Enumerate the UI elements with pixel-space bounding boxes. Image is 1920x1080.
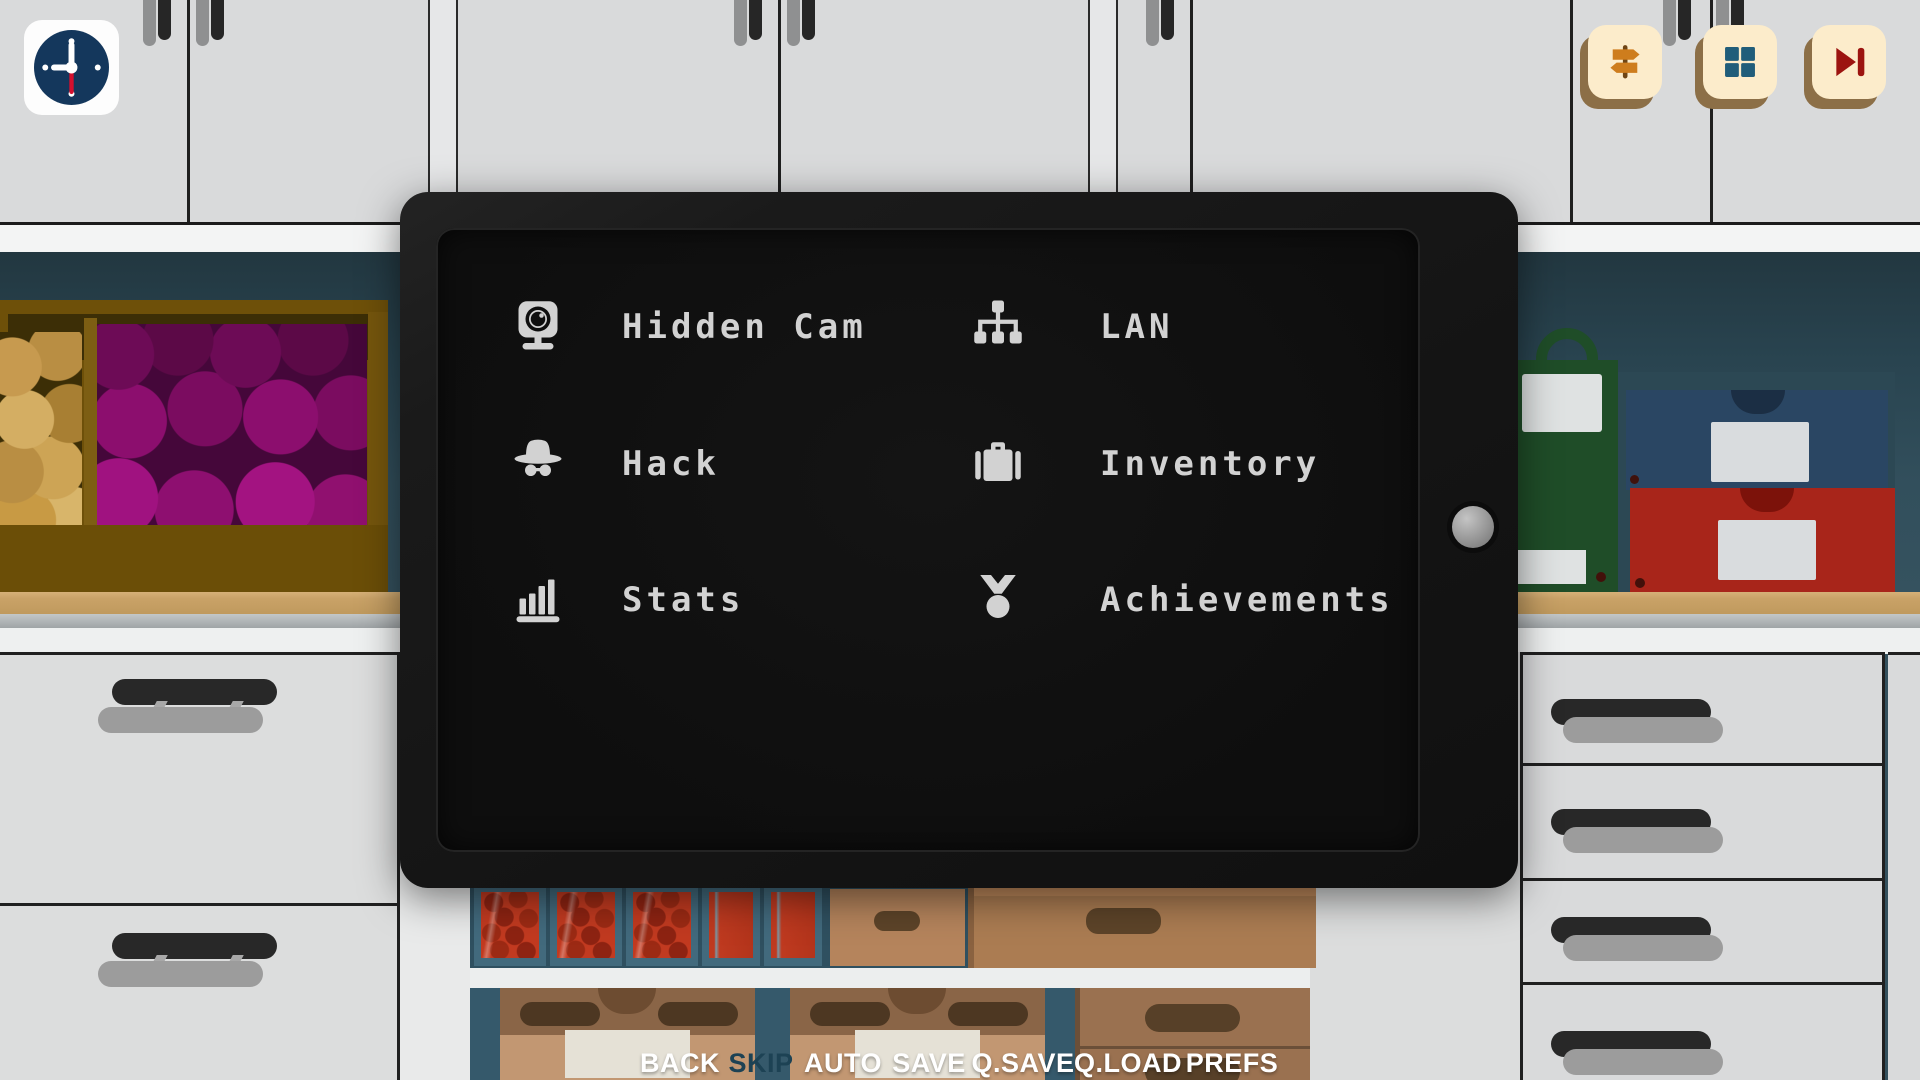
drawer-handle-shadow <box>98 707 263 733</box>
box-handle-hole <box>520 1002 600 1026</box>
tablet-device: Hidden Cam Hack <box>400 192 1518 888</box>
cabinet-door-divider <box>1190 0 1193 222</box>
apps-grid-button[interactable] <box>1703 25 1777 99</box>
quickmenu-auto[interactable]: AUTO <box>804 1046 882 1080</box>
box-dot <box>1630 475 1639 484</box>
box-label <box>1522 374 1602 432</box>
skip-forward-button[interactable] <box>1812 25 1886 99</box>
cabinet-handle <box>143 0 156 46</box>
cabinet-door-divider <box>1570 0 1573 222</box>
cabinet-handle <box>749 0 762 40</box>
drawer-divider <box>1523 982 1882 985</box>
menu-item-label: LAN <box>1100 307 1173 347</box>
menu-item-lan[interactable]: LAN <box>960 281 1390 369</box>
purple-produce-pile <box>97 324 367 526</box>
menu-item-hidden-cam[interactable]: Hidden Cam <box>500 281 930 369</box>
tablet-screen: Hidden Cam Hack <box>436 228 1420 852</box>
cabinet-handle <box>196 0 209 46</box>
box-shelf <box>470 988 1310 1080</box>
red-storage-box <box>1630 488 1895 592</box>
bin-front-panel <box>0 525 388 592</box>
medal-icon <box>968 568 1028 628</box>
cabinet-end-panel <box>1888 652 1920 1080</box>
tomato-crate <box>550 888 622 966</box>
drawer-handle-shadow <box>98 961 263 987</box>
drawer-handle <box>112 679 277 705</box>
red-container-crate <box>764 888 822 966</box>
spy-icon <box>508 432 568 492</box>
drawer-divider <box>0 903 397 906</box>
red-container-crate <box>702 888 760 966</box>
grid-icon <box>1717 39 1763 85</box>
cabinet-handle <box>787 0 800 46</box>
cabinet-handle <box>1146 0 1159 46</box>
map-navigation-button[interactable] <box>1588 25 1662 99</box>
green-storage-box <box>1518 360 1618 592</box>
clock-button[interactable] <box>24 20 119 115</box>
right-drawer-unit <box>1520 652 1885 1080</box>
menu-item-achievements[interactable]: Achievements <box>960 554 1390 642</box>
box-label <box>1718 520 1816 580</box>
cabinet-handle <box>802 0 815 40</box>
briefcase-icon <box>968 432 1028 492</box>
crate-shelf <box>470 888 1310 968</box>
gold-produce-pile <box>0 332 82 526</box>
box-dot <box>1596 572 1606 582</box>
webcam-icon <box>508 295 568 355</box>
menu-item-hack[interactable]: Hack <box>500 418 930 506</box>
box-label <box>1518 550 1586 584</box>
box-label <box>1711 422 1809 482</box>
menu-item-label: Inventory <box>1100 444 1320 484</box>
cabinet-section-gap <box>1088 0 1118 222</box>
bin-divider <box>84 318 97 526</box>
cabinet-handle <box>734 0 747 46</box>
box-notch <box>1740 488 1794 512</box>
cabinet-handle <box>211 0 224 40</box>
cabinet-handle <box>1678 0 1691 40</box>
quickmenu-skip[interactable]: SKIP <box>728 1046 793 1080</box>
drawer-handle-shadow <box>1563 827 1723 853</box>
box-notch <box>1731 390 1785 414</box>
cabinet-handle <box>1161 0 1174 40</box>
cabinet-handle <box>158 0 171 40</box>
menu-item-label: Achievements <box>1100 580 1394 620</box>
drawer-handle-shadow <box>1563 1049 1723 1075</box>
drawer-divider <box>1523 763 1882 766</box>
box-handle-hole <box>948 1002 1028 1026</box>
drawer-handle-shadow <box>1563 935 1723 961</box>
menu-item-label: Hidden Cam <box>622 307 867 347</box>
quickmenu-save[interactable]: SAVE <box>892 1046 966 1080</box>
tomato-crate <box>474 888 546 966</box>
left-drawer-unit <box>0 652 400 1080</box>
menu-item-stats[interactable]: Stats <box>500 554 930 642</box>
tomato-crate <box>626 888 698 966</box>
shelf-strip <box>470 968 1310 990</box>
box-handle-hole <box>810 1002 890 1026</box>
bar-chart-icon <box>508 568 568 628</box>
box-handle-hole <box>1086 908 1161 934</box>
drawer-handle <box>1145 1004 1240 1032</box>
drawer-top-edge <box>974 888 1316 896</box>
drawer-handle <box>112 933 277 959</box>
cabinet-door-divider <box>778 0 781 222</box>
cabinet-section-gap <box>428 0 458 222</box>
menu-item-label: Stats <box>622 580 744 620</box>
box-handle-hole <box>874 911 920 931</box>
cabinet-handle <box>1663 0 1676 46</box>
menu-item-inventory[interactable]: Inventory <box>960 418 1390 506</box>
cardboard-box <box>830 889 965 966</box>
quickmenu-qload[interactable]: Q.LOAD <box>1074 1046 1182 1080</box>
navy-storage-box <box>1626 390 1888 490</box>
clock-icon <box>34 30 109 105</box>
drawer-handle-shadow <box>1563 717 1723 743</box>
network-icon <box>968 295 1028 355</box>
quickmenu-qsave[interactable]: Q.SAVE <box>971 1046 1074 1080</box>
box-handle-hole <box>658 1002 738 1026</box>
drawer-divider <box>1523 878 1882 881</box>
skip-forward-icon <box>1826 39 1872 85</box>
game-stage: Hidden Cam Hack <box>0 0 1920 1080</box>
menu-item-label: Hack <box>622 444 720 484</box>
quickmenu-prefs[interactable]: PREFS <box>1186 1046 1279 1080</box>
bin-right-wall <box>368 312 388 526</box>
signpost-icon <box>1602 39 1648 85</box>
quickmenu-back[interactable]: BACK <box>640 1046 720 1080</box>
cardboard-drawer <box>968 888 1316 968</box>
cabinet-door-divider <box>187 0 190 222</box>
box-dot <box>1635 578 1645 588</box>
produce-bin <box>0 300 388 592</box>
tablet-camera-dot <box>1452 506 1494 548</box>
